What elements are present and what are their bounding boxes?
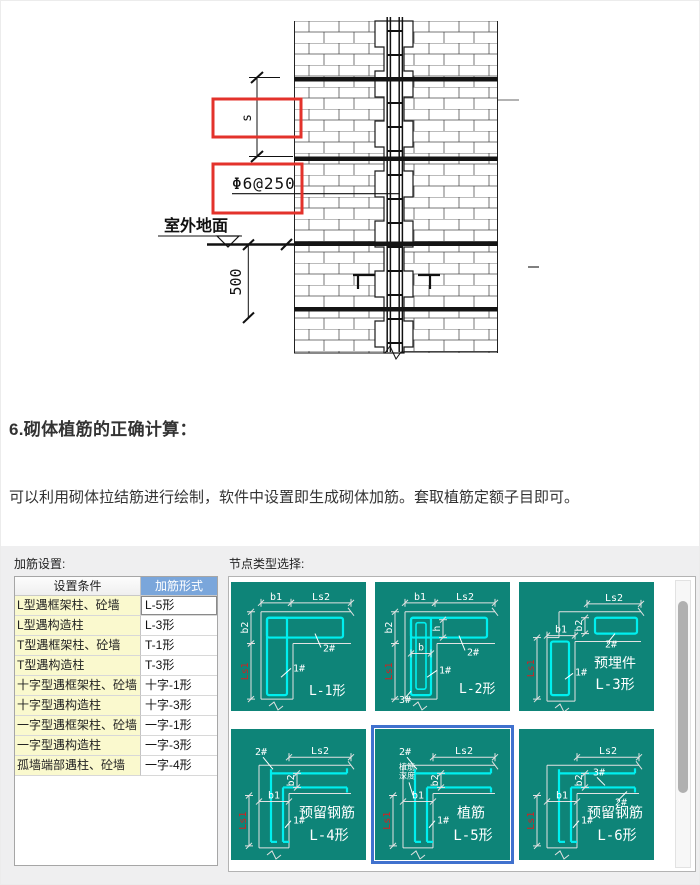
condition-cell: L型遇构造柱	[15, 616, 141, 636]
table-row[interactable]: T型遇框架柱、砼墙T-1形	[15, 636, 217, 656]
table-header-row: 设置条件 加筋形式	[15, 577, 217, 596]
table-row[interactable]: 十字型遇框架柱、砼墙十字-1形	[15, 676, 217, 696]
dim-s-label: s	[240, 114, 255, 122]
scrollbar-track[interactable]	[675, 580, 691, 868]
node-type-cell-L-3[interactable]: Ls2b2b1Ls12#1#预埋件L-3形	[519, 582, 654, 711]
dim-500-label: 500	[227, 268, 245, 295]
form-cell[interactable]: T-3形	[141, 656, 217, 676]
masonry-wall-drawing: s Φ6@250 室外地面 500	[1, 1, 700, 401]
svg-text:L-1形: L-1形	[309, 684, 346, 699]
svg-text:Ls1: Ls1	[384, 662, 395, 680]
svg-text:b1: b1	[414, 592, 426, 603]
header-form[interactable]: 加筋形式	[141, 577, 217, 596]
form-cell[interactable]: L-3形	[141, 616, 217, 636]
svg-text:1#: 1#	[439, 665, 451, 676]
condition-cell: T型遇框架柱、砼墙	[15, 636, 141, 656]
table-row[interactable]: L型遇框架柱、砼墙L-5形	[15, 596, 217, 616]
table-row[interactable]: 一字型遇框架柱、砼墙一字-1形	[15, 716, 217, 736]
reinforcement-settings-table: 设置条件 加筋形式 L型遇框架柱、砼墙L-5形L型遇构造柱L-3形T型遇框架柱、…	[14, 576, 218, 866]
form-cell[interactable]: L-5形	[141, 596, 217, 616]
form-cell[interactable]: 一字-1形	[141, 716, 217, 736]
table-row[interactable]: T型遇构造柱T-3形	[15, 656, 217, 676]
svg-text:L-4形: L-4形	[309, 828, 348, 844]
condition-cell: 孤墙端部遇柱、砼墙	[15, 756, 141, 776]
svg-text:Ls2: Ls2	[311, 746, 329, 757]
svg-text:预埋件: 预埋件	[594, 655, 636, 671]
svg-text:b1: b1	[412, 791, 424, 802]
svg-text:b1: b1	[268, 791, 280, 802]
node-type-cell-L-5[interactable]: Ls2b2b1Ls12#1#植筋深度植筋L-5形	[375, 729, 510, 860]
svg-text:Ls2: Ls2	[456, 592, 474, 603]
svg-text:2#: 2#	[255, 747, 268, 758]
ground-level-mark	[158, 236, 294, 250]
svg-text:3#: 3#	[399, 695, 411, 706]
node-type-cell-L-4[interactable]: Ls2b2b1Ls12#1#预留钢筋L-4形	[231, 729, 366, 860]
form-cell[interactable]: 一字-3形	[141, 736, 217, 756]
svg-text:Ls2: Ls2	[455, 746, 473, 757]
svg-text:Ls1: Ls1	[526, 812, 537, 830]
node-diagram-L-6: Ls2b2b1Ls13#2#1#预留钢筋L-6形	[519, 729, 654, 860]
svg-text:3#: 3#	[593, 767, 606, 778]
node-diagram-L-3: Ls2b2b1Ls12#1#预埋件L-3形	[519, 582, 654, 711]
node-diagram-L-2: b1Ls2b2Ls1hb3#2#1#L-2形	[375, 582, 510, 711]
node-diagram-L-5: Ls2b2b1Ls12#1#植筋深度植筋L-5形	[375, 729, 510, 860]
svg-text:b2: b2	[286, 774, 297, 786]
svg-text:h: h	[432, 626, 443, 632]
svg-text:预留钢筋: 预留钢筋	[299, 805, 355, 822]
svg-text:b1: b1	[270, 592, 282, 603]
svg-text:b2: b2	[240, 622, 251, 634]
svg-text:2#: 2#	[605, 640, 617, 651]
svg-text:b2: b2	[574, 774, 585, 786]
form-cell[interactable]: 十字-1形	[141, 676, 217, 696]
svg-text:1#: 1#	[437, 816, 450, 827]
svg-text:Ls2: Ls2	[312, 592, 330, 603]
form-cell[interactable]: T-1形	[141, 636, 217, 656]
form-cell[interactable]: 一字-4形	[141, 756, 217, 776]
svg-text:1#: 1#	[293, 663, 305, 674]
ground-label: 室外地面	[164, 216, 228, 235]
node-type-cell-L-2[interactable]: b1Ls2b2Ls1hb3#2#1#L-2形	[375, 582, 510, 711]
svg-text:预留钢筋: 预留钢筋	[587, 805, 643, 822]
section-heading: 6.砌体植筋的正确计算：	[9, 415, 197, 440]
phi-label: Φ6@250	[232, 174, 296, 193]
svg-text:b: b	[418, 643, 424, 654]
condition-cell: 一字型遇构造柱	[15, 736, 141, 756]
node-type-panel: b1Ls2b2Ls12#1#L-1形b1Ls2b2Ls1hb3#2#1#L-2形…	[228, 576, 696, 872]
svg-text:深度: 深度	[399, 770, 415, 780]
svg-text:2#: 2#	[323, 643, 335, 654]
condition-cell: 十字型遇框架柱、砼墙	[15, 676, 141, 696]
section-paragraph: 可以利用砌体拉结筋进行绘制，软件中设置即生成砌体加筋。套取植筋定额子目即可。	[9, 486, 697, 507]
software-panel: 加筋设置: 设置条件 加筋形式 L型遇框架柱、砼墙L-5形L型遇构造柱L-3形T…	[1, 546, 700, 885]
svg-text:b2: b2	[574, 620, 585, 632]
svg-text:b2: b2	[430, 774, 441, 786]
svg-text:L-6形: L-6形	[597, 828, 636, 844]
svg-text:Ls1: Ls1	[526, 659, 537, 677]
form-cell[interactable]: 十字-3形	[141, 696, 217, 716]
svg-text:Ls1: Ls1	[382, 812, 393, 830]
svg-text:植筋: 植筋	[457, 805, 485, 822]
svg-text:1#: 1#	[575, 667, 587, 678]
condition-cell: L型遇框架柱、砼墙	[15, 596, 141, 616]
node-diagram-L-4: Ls2b2b1Ls12#1#预留钢筋L-4形	[231, 729, 366, 860]
header-condition: 设置条件	[15, 577, 141, 596]
table-row[interactable]: L型遇构造柱L-3形	[15, 616, 217, 636]
node-type-cell-L-1[interactable]: b1Ls2b2Ls12#1#L-1形	[231, 582, 366, 711]
svg-text:2#: 2#	[399, 747, 412, 758]
table-row[interactable]: 十字型遇构造柱十字-3形	[15, 696, 217, 716]
svg-text:Ls2: Ls2	[605, 593, 623, 604]
svg-text:L-5形: L-5形	[453, 828, 492, 844]
svg-text:b1: b1	[555, 625, 567, 636]
node-diagram-L-1: b1Ls2b2Ls12#1#L-1形	[231, 582, 366, 711]
svg-text:Ls1: Ls1	[238, 812, 249, 830]
condition-cell: 一字型遇框架柱、砼墙	[15, 716, 141, 736]
svg-text:L-3形: L-3形	[595, 677, 634, 693]
condition-cell: T型遇构造柱	[15, 656, 141, 676]
svg-text:Ls1: Ls1	[240, 662, 251, 680]
svg-text:b1: b1	[556, 791, 568, 802]
svg-text:2#: 2#	[467, 647, 479, 658]
condition-cell: 十字型遇构造柱	[15, 696, 141, 716]
scrollbar-thumb[interactable]	[678, 601, 688, 793]
node-type-title: 节点类型选择:	[229, 555, 304, 572]
table-row[interactable]: 一字型遇构造柱一字-3形	[15, 736, 217, 756]
svg-text:植筋: 植筋	[399, 761, 415, 771]
svg-text:b2: b2	[384, 622, 395, 634]
svg-text:L-2形: L-2形	[459, 682, 496, 697]
page: s Φ6@250 室外地面 500	[0, 0, 700, 885]
table-row[interactable]: 孤墙端部遇柱、砼墙一字-4形	[15, 756, 217, 776]
node-type-cell-L-6[interactable]: Ls2b2b1Ls13#2#1#预留钢筋L-6形	[519, 729, 654, 860]
dimension-s	[249, 72, 293, 162]
settings-title: 加筋设置:	[14, 555, 65, 572]
svg-text:Ls2: Ls2	[599, 746, 617, 757]
